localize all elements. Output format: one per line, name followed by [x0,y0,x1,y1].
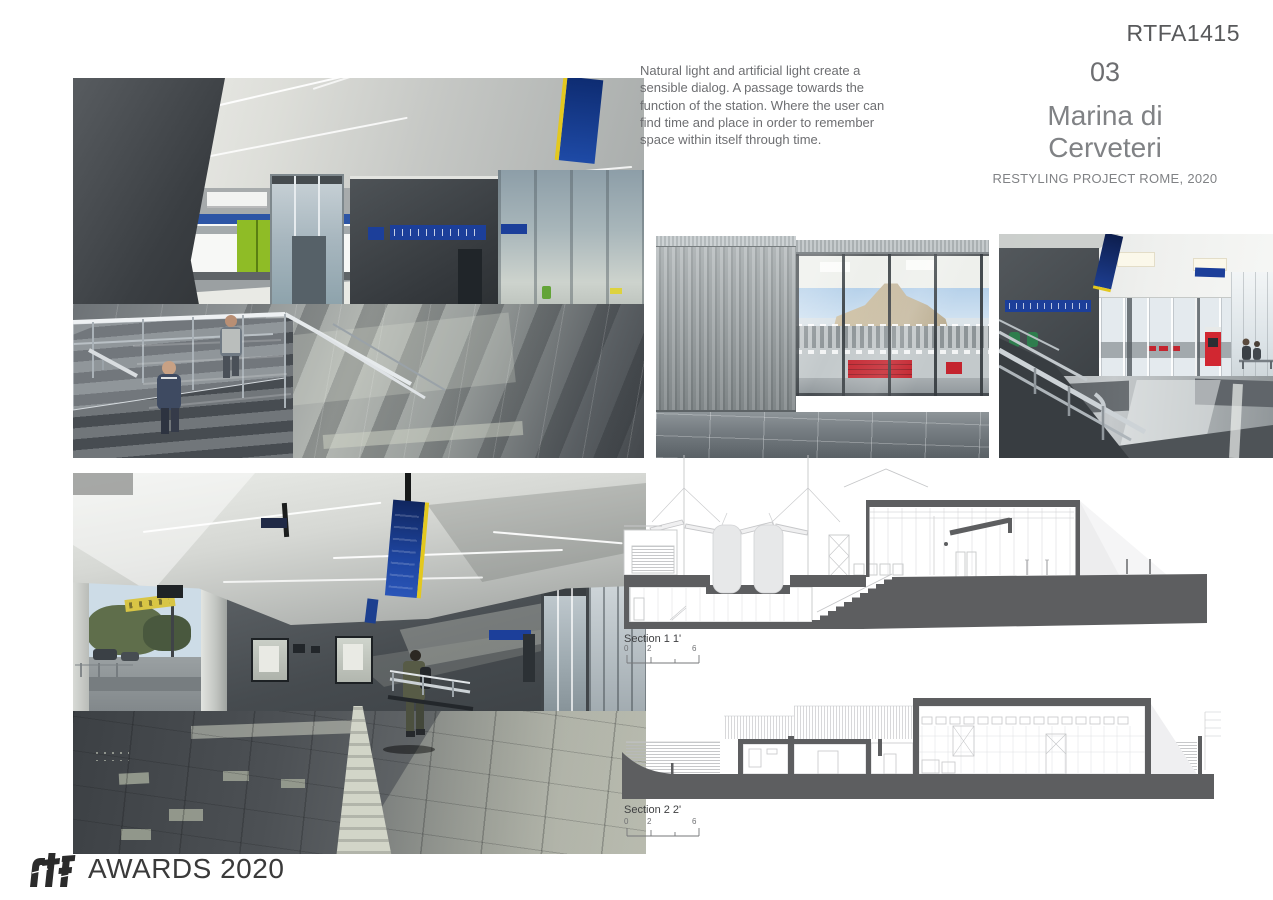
corrugated-fascia [796,240,989,254]
photo-station-interior-staircase [73,78,644,458]
people-on-bench [1239,339,1273,370]
awards-text: AWARDS 2020 [88,853,284,885]
photo-station-canopy-passage [73,473,646,854]
project-number: 03 [988,57,1222,88]
rtf-logo-mark [30,849,76,889]
project-title: Marina di Cerveteri [988,100,1222,164]
section-2-scale-bar: 0 2 6 [626,817,698,839]
section-drawing-2 [622,690,1222,805]
louver-cladding [656,236,796,412]
glass-wall [796,254,989,396]
presentation-board: RTFA1415 [0,0,1273,900]
section-1-scale-bar: 0 2 6 [626,644,698,666]
railing-overlay [73,473,646,854]
railing-overlay [999,234,1273,458]
railings-overlay [73,78,644,458]
section-drawing-1 [622,452,1212,632]
board-code: RTFA1415 [1126,20,1240,47]
rtf-awards-logo: rtf AWARDS 2020 [30,848,284,890]
photo-station-hall-interior [999,234,1273,458]
section-2-label: Section 2 2' [624,804,681,816]
photo-station-exterior-glass-facade [656,234,989,458]
project-subtitle: RESTYLING PROJECT ROME, 2020 [988,171,1222,186]
project-heading: 03 Marina di Cerveteri RESTYLING PROJECT… [988,57,1222,186]
project-description: Natural light and artificial light creat… [640,62,898,148]
